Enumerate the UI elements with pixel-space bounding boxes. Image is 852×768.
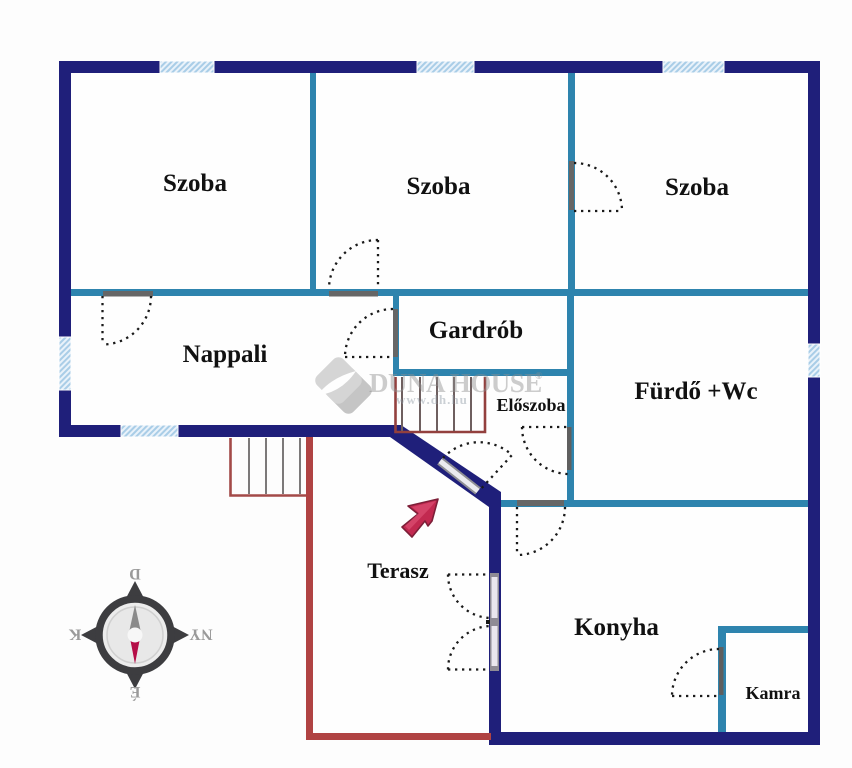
svg-text:Szoba: Szoba (407, 173, 471, 200)
svg-text:Konyha: Konyha (574, 614, 659, 641)
svg-text:www.dh.hu: www.dh.hu (396, 392, 468, 407)
svg-text:Terasz: Terasz (367, 558, 429, 583)
svg-text:D: D (129, 565, 141, 582)
svg-text:Kamra: Kamra (746, 683, 801, 703)
svg-text:K: K (68, 626, 81, 643)
svg-text:Szoba: Szoba (665, 174, 729, 201)
svg-text:Gardrób: Gardrób (429, 317, 523, 344)
svg-text:É: É (130, 683, 141, 702)
svg-text:NY: NY (189, 626, 213, 643)
svg-text:Szoba: Szoba (163, 170, 227, 197)
svg-text:®: ® (535, 371, 543, 382)
svg-text:Fürdő +Wc: Fürdő +Wc (634, 378, 757, 405)
svg-text:Nappali: Nappali (183, 341, 268, 368)
svg-text:Előszoba: Előszoba (496, 395, 565, 415)
